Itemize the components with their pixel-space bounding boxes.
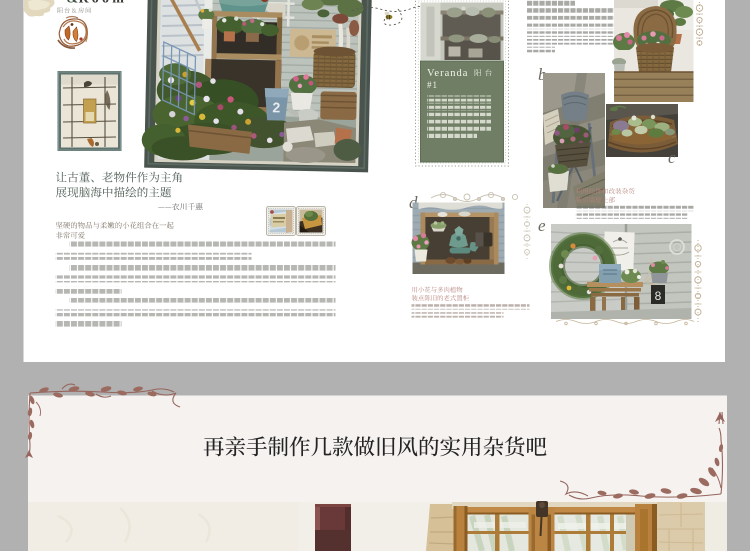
svg-text:c: c <box>668 148 676 167</box>
svg-text:Veranda: Veranda <box>427 68 468 79</box>
svg-text:&: & <box>67 0 79 6</box>
svg-text:8: 8 <box>655 289 662 303</box>
svg-text:Room: Room <box>79 0 128 6</box>
svg-text:e: e <box>538 216 546 235</box>
svg-text:2: 2 <box>272 99 280 115</box>
svg-text:#1: #1 <box>427 80 438 90</box>
